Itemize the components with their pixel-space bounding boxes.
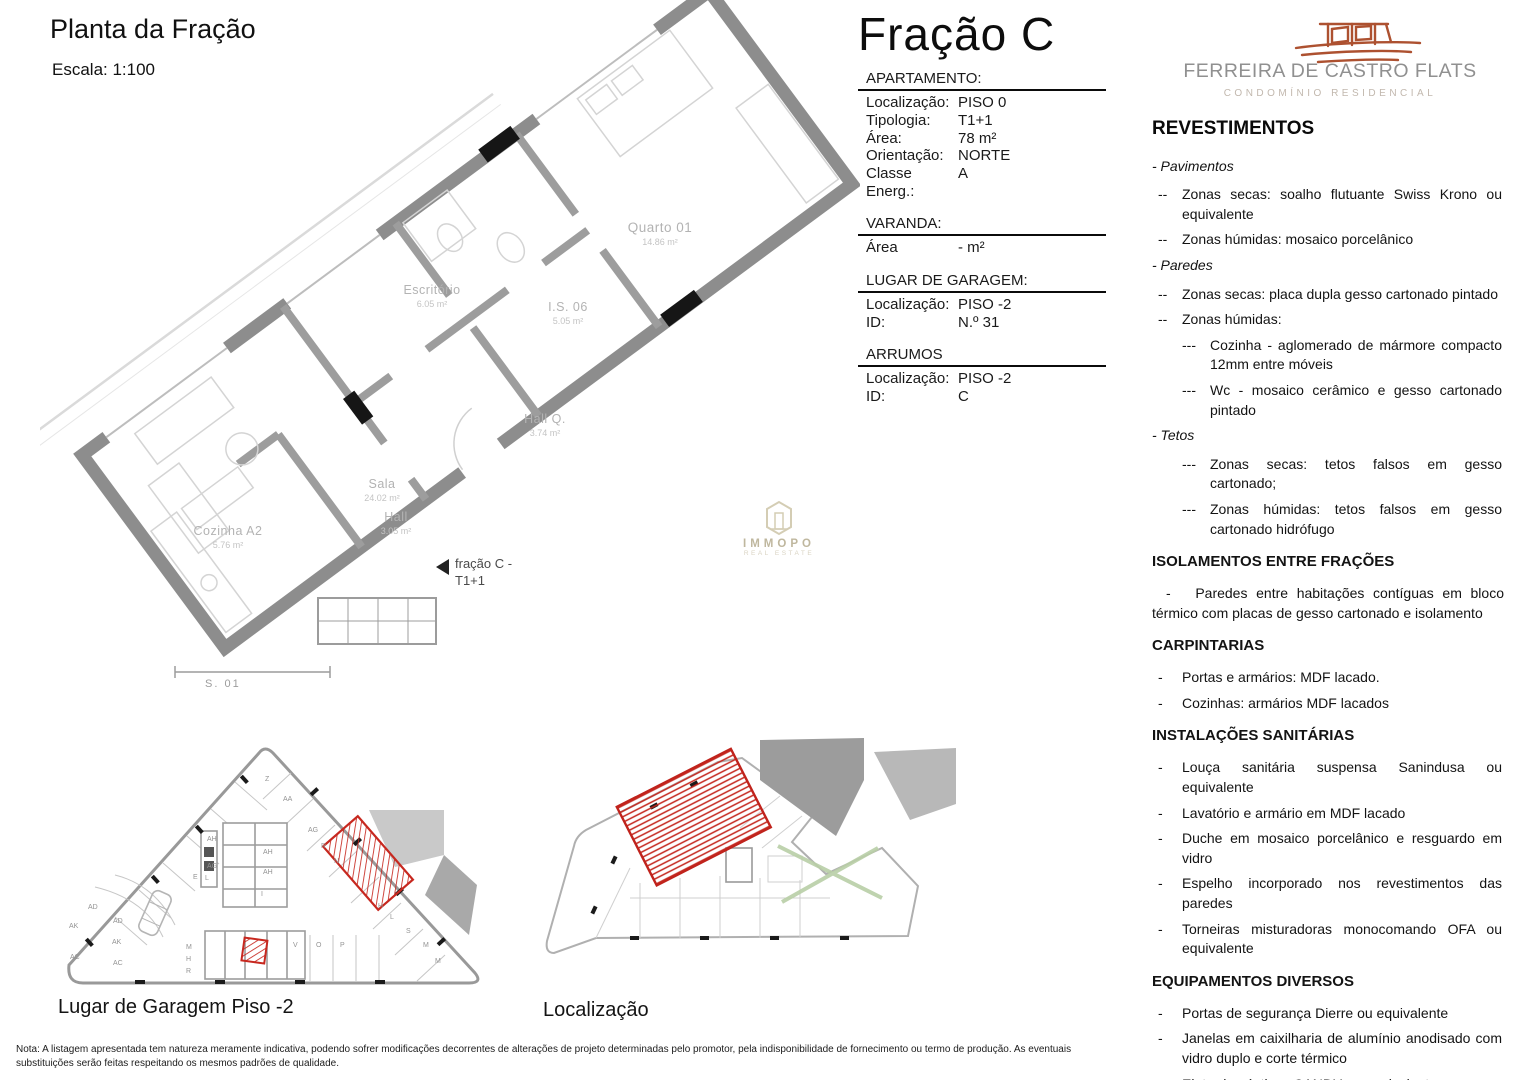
- room-label-hall-q: Hall Q. 3.74 m²: [524, 412, 566, 439]
- watermark-subtitle: REAL ESTATE: [712, 550, 846, 557]
- row-value: T1+1: [958, 112, 1106, 130]
- row-label: Área:: [866, 130, 958, 148]
- spec-bullet: --: [1152, 310, 1182, 330]
- spec-line: --- Wc - mosaico cerâmico e gesso carton…: [1182, 381, 1504, 420]
- spec-bullet: --: [1152, 185, 1182, 224]
- fraction-panel: Fração C APARTAMENTO: Localização:PISO 0…: [858, 10, 1106, 421]
- spec-text: - Pavimentos: [1152, 158, 1236, 174]
- section-heading: LUGAR DE GARAGEM:: [858, 272, 1106, 293]
- room-label-quarto: Quarto 01 14.86 m²: [628, 220, 693, 248]
- spec-line: REVESTIMENTOS: [1152, 116, 1504, 143]
- row-label: Classe Energ.:: [866, 165, 958, 200]
- data-row: Área- m²: [858, 239, 1106, 257]
- section-heading: APARTAMENTO:: [858, 70, 1106, 91]
- spec-text: Lavatório e armário em MDF lacado: [1182, 804, 1504, 824]
- svg-text:AC: AC: [113, 960, 123, 967]
- spec-line: - Torneiras misturadoras monocomando OFA…: [1152, 920, 1504, 959]
- brand-subtitle: CONDOMÍNIO RESIDENCIAL: [1150, 88, 1510, 99]
- svg-text:S: S: [406, 928, 411, 935]
- row-label: Localização:: [866, 296, 958, 314]
- row-value: PISO 0: [958, 94, 1106, 112]
- data-row: Classe Energ.:A: [858, 165, 1106, 200]
- svg-text:AK: AK: [69, 923, 79, 930]
- data-row: Localização:PISO 0: [858, 94, 1106, 112]
- spec-text: Duche em mosaico porcelânico e resguardo…: [1182, 829, 1504, 868]
- svg-text:AH: AH: [263, 849, 273, 856]
- svg-text:R: R: [321, 843, 326, 850]
- section-garagem: LUGAR DE GARAGEM: Localização:PISO -2ID:…: [858, 272, 1106, 331]
- spec-bullet: ---: [1182, 336, 1210, 375]
- data-row: Tipologia:T1+1: [858, 112, 1106, 130]
- immopo-shield-icon: [762, 500, 796, 536]
- svg-text:AH: AH: [263, 869, 273, 876]
- spec-text: Paredes entre habitações contíguas em bl…: [1152, 585, 1504, 621]
- svg-text:L: L: [205, 875, 209, 882]
- svg-text:H: H: [378, 903, 383, 910]
- svg-text:R: R: [186, 968, 191, 975]
- section-marker-label: S. 01: [205, 678, 241, 690]
- spec-bullet: -: [1152, 829, 1182, 868]
- row-value: - m²: [958, 239, 1106, 257]
- spec-text: ISOLAMENTOS ENTRE FRAÇÕES: [1152, 553, 1396, 570]
- data-row: Localização:PISO -2: [858, 370, 1106, 388]
- spec-line: -- Zonas secas: soalho flutuante Swiss K…: [1152, 185, 1504, 224]
- spec-text: INSTALAÇÕES SANITÁRIAS: [1152, 727, 1356, 744]
- section-arrumos: ARRUMOS Localização:PISO -2ID:C: [858, 346, 1106, 405]
- data-row: Localização:PISO -2: [858, 296, 1106, 314]
- row-label: Localização:: [866, 370, 958, 388]
- section-rows: Área- m²: [858, 239, 1106, 257]
- section-heading: ARRUMOS: [858, 346, 1106, 367]
- row-value: NORTE: [958, 147, 1106, 165]
- spec-text: Zonas secas: tetos falsos em gesso carto…: [1210, 455, 1504, 494]
- section-varanda: VARANDA: Área- m²: [858, 215, 1106, 257]
- data-row: ID:N.º 31: [858, 314, 1106, 332]
- row-value: N.º 31: [958, 314, 1106, 332]
- spec-line: - Portas e armários: MDF lacado.: [1152, 668, 1504, 688]
- svg-text:M: M: [435, 958, 441, 965]
- spec-text: - Paredes: [1152, 257, 1215, 273]
- row-value: A: [958, 165, 1106, 200]
- garage-plan-label: Lugar de Garagem Piso -2: [58, 996, 294, 1019]
- svg-text:AG: AG: [308, 827, 318, 834]
- fraction-entrance-marker: fração C - T1+1: [436, 556, 512, 590]
- immopo-watermark: IMMOPO REAL ESTATE: [712, 500, 846, 557]
- fraction-title: Fração C: [858, 10, 1106, 58]
- spec-line: - Louça sanitária suspensa Sanindusa ou …: [1152, 758, 1504, 797]
- svg-text:V: V: [293, 942, 298, 949]
- spec-bullet: -: [1152, 668, 1182, 688]
- svg-text:O: O: [316, 942, 322, 949]
- spec-text: - Tetos: [1152, 427, 1196, 443]
- spec-bullet: --: [1152, 230, 1182, 250]
- garage-highlight-storage: [241, 938, 267, 964]
- spec-text: Cozinha - aglomerado de mármore compacto…: [1210, 336, 1504, 375]
- svg-text:P: P: [340, 942, 345, 949]
- spec-line: - Duche em mosaico porcelânico e resguar…: [1152, 829, 1504, 868]
- room-label-cozinha: Cozinha A2 5.76 m²: [194, 524, 263, 551]
- row-label: ID:: [866, 388, 958, 406]
- spec-bullet: ---: [1182, 500, 1210, 539]
- svg-text:AG: AG: [207, 863, 217, 870]
- row-value: PISO -2: [958, 296, 1106, 314]
- spec-line: - Tetos: [1152, 426, 1504, 446]
- room-label-hall: Hall 3.05 m²: [381, 510, 412, 537]
- spec-line: - Paredes entre habitações contíguas em …: [1152, 584, 1504, 623]
- svg-text:E: E: [193, 874, 198, 881]
- svg-text:AH: AH: [207, 836, 217, 843]
- svg-text:L: L: [390, 914, 394, 921]
- revestimentos-list: REVESTIMENTOS - Pavimentos -- Zonas seca…: [1152, 116, 1504, 1080]
- spec-line: --- Zonas secas: tetos falsos em gesso c…: [1182, 455, 1504, 494]
- section-heading: VARANDA:: [858, 215, 1106, 236]
- spec-text: Wc - mosaico cerâmico e gesso cartonado …: [1210, 381, 1504, 420]
- spec-line: - Paredes: [1152, 256, 1504, 276]
- row-label: Orientação:: [866, 147, 958, 165]
- spec-line: EQUIPAMENTOS DIVERSOS: [1152, 971, 1504, 992]
- spec-line: CARPINTARIAS: [1152, 635, 1504, 656]
- svg-text:Z: Z: [265, 776, 270, 783]
- row-label: Área: [866, 239, 958, 257]
- section-line: [175, 666, 330, 678]
- spec-bullet: -: [1152, 920, 1182, 959]
- spec-line: --- Zonas húmidas: tetos falsos em gesso…: [1182, 500, 1504, 539]
- spec-text: EQUIPAMENTOS DIVERSOS: [1152, 973, 1356, 990]
- spec-bullet: -: [1152, 1075, 1182, 1080]
- data-row: ID:C: [858, 388, 1106, 406]
- svg-text:M: M: [186, 944, 192, 951]
- spec-bullet: ---: [1182, 381, 1210, 420]
- spec-text: Eletrodomésticos CANDY ou equivalente: [1182, 1075, 1504, 1080]
- row-value: PISO -2: [958, 370, 1106, 388]
- spec-text: Torneiras misturadoras monocomando OFA o…: [1182, 920, 1504, 959]
- footnote: Nota: A listagem apresentada tem naturez…: [16, 1043, 1112, 1070]
- section-rows: Localização:PISO -2ID:C: [858, 370, 1106, 405]
- document-page: Planta da Fração Escala: 1:100: [0, 0, 1528, 1080]
- room-label-sala: Sala 24.02 m²: [364, 477, 400, 504]
- room-label-is06: I.S. 06 5.05 m²: [548, 300, 588, 327]
- svg-text:AK: AK: [112, 939, 122, 946]
- row-value: 78 m²: [958, 130, 1106, 148]
- data-row: Área:78 m²: [858, 130, 1106, 148]
- spec-line: - Lavatório e armário em MDF lacado: [1152, 804, 1504, 824]
- spec-line: - Pavimentos: [1152, 157, 1504, 177]
- spec-line: --- Cozinha - aglomerado de mármore comp…: [1182, 336, 1504, 375]
- svg-text:AA: AA: [283, 796, 293, 803]
- row-label: Localização:: [866, 94, 958, 112]
- spec-bullet: -: [1152, 694, 1182, 714]
- spec-text: REVESTIMENTOS: [1152, 118, 1316, 139]
- spec-text: CARPINTARIAS: [1152, 637, 1266, 654]
- row-value: C: [958, 388, 1106, 406]
- svg-text:I: I: [261, 891, 263, 898]
- spec-text: Zonas húmidas: tetos falsos em gesso car…: [1210, 500, 1504, 539]
- brand-name: FERREIRA DE CASTRO FLATS: [1150, 60, 1510, 83]
- spec-text: Zonas húmidas:: [1182, 310, 1504, 330]
- spec-line: - Espelho incorporado nos revestimentos …: [1152, 874, 1504, 913]
- svg-text:AC: AC: [70, 954, 80, 961]
- section-rows: Localização:PISO 0Tipologia:T1+1Área:78 …: [858, 94, 1106, 200]
- spec-bullet: -: [1152, 1029, 1182, 1068]
- location-plan: [530, 708, 960, 973]
- row-label: Tipologia:: [866, 112, 958, 130]
- spec-bullet: ---: [1182, 455, 1210, 494]
- spec-text: Zonas secas: placa dupla gesso cartonado…: [1182, 285, 1504, 305]
- svg-text:AD: AD: [113, 918, 123, 925]
- section-apartamento: APARTAMENTO: Localização:PISO 0Tipologia…: [858, 70, 1106, 200]
- section-rows: Localização:PISO -2ID:N.º 31: [858, 296, 1106, 331]
- spec-line: - Cozinhas: armários MDF lacados: [1152, 694, 1504, 714]
- row-label: ID:: [866, 314, 958, 332]
- spec-bullet: -: [1152, 1004, 1182, 1024]
- spec-line: -- Zonas húmidas: mosaico porcelânico: [1152, 230, 1504, 250]
- apartment-floorplan: [40, 0, 860, 720]
- spec-text: Zonas secas: soalho flutuante Swiss Kron…: [1182, 185, 1504, 224]
- spec-text: Cozinhas: armários MDF lacados: [1182, 694, 1504, 714]
- spec-bullet: -: [1160, 585, 1171, 601]
- left-arrow-icon: [436, 559, 449, 575]
- garage-plan: Z AA AG R N AH AG E L AH AH I AD AD AK A…: [55, 735, 485, 990]
- spec-text: Espelho incorporado nos revestimentos da…: [1182, 874, 1504, 913]
- spec-bullet: --: [1152, 285, 1182, 305]
- data-row: Orientação:NORTE: [858, 147, 1106, 165]
- storage-detail: [318, 598, 436, 644]
- spec-line: ISOLAMENTOS ENTRE FRAÇÕES: [1152, 551, 1504, 572]
- fraction-arrow-sub: T1+1: [455, 573, 512, 590]
- fraction-arrow-label: fração C -: [455, 556, 512, 573]
- spec-line: -- Zonas húmidas:: [1152, 310, 1504, 330]
- spec-line: - Portas de segurança Dierre ou equivale…: [1152, 1004, 1504, 1024]
- spec-line: -- Zonas secas: placa dupla gesso carton…: [1152, 285, 1504, 305]
- spec-line: - Janelas em caixilharia de alumínio ano…: [1152, 1029, 1504, 1068]
- svg-text:M: M: [423, 942, 429, 949]
- svg-text:N: N: [334, 858, 339, 865]
- spec-text: Portas e armários: MDF lacado.: [1182, 668, 1504, 688]
- watermark-name: IMMOPO: [712, 538, 846, 550]
- spec-bullet: -: [1152, 874, 1182, 913]
- svg-text:H: H: [186, 956, 191, 963]
- spec-line: - Eletrodomésticos CANDY ou equivalente: [1152, 1075, 1504, 1080]
- svg-text:AD: AD: [88, 904, 98, 911]
- location-plan-label: Localização: [543, 999, 649, 1022]
- spec-text: Portas de segurança Dierre ou equivalent…: [1182, 1004, 1504, 1024]
- spec-line: INSTALAÇÕES SANITÁRIAS: [1152, 725, 1504, 746]
- spec-text: Zonas húmidas: mosaico porcelânico: [1182, 230, 1504, 250]
- spec-bullet: -: [1152, 804, 1182, 824]
- spec-bullet: -: [1152, 758, 1182, 797]
- spec-text: Janelas em caixilharia de alumínio anodi…: [1182, 1029, 1504, 1068]
- room-label-escritorio: Escritório 6.05 m²: [403, 283, 460, 310]
- spec-text: Louça sanitária suspensa Sanindusa ou eq…: [1182, 758, 1504, 797]
